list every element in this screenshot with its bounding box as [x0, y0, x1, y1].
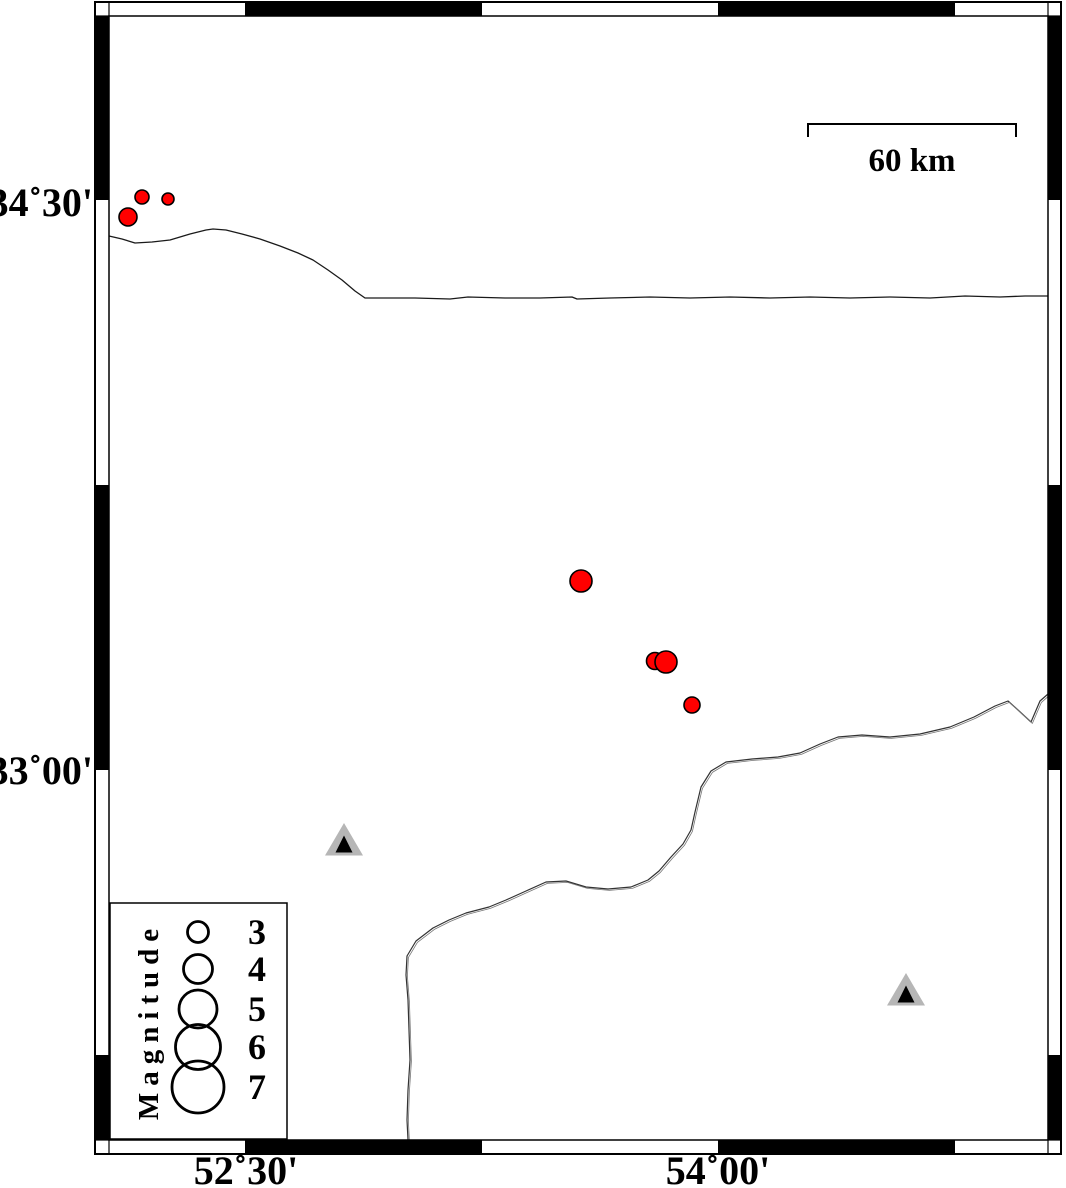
earthquake-marker	[570, 570, 592, 592]
scale-bar-label: 60 km	[868, 143, 955, 179]
legend-magnitude-label: 4	[248, 949, 266, 989]
frame-segment	[1048, 485, 1061, 770]
x-axis-tick-label: 54˚00'	[666, 1148, 770, 1188]
legend-magnitude-label: 3	[248, 912, 266, 952]
seismicity-map: Magnitude 34567 34˚30'33˚00'52˚30'54˚00'…	[0, 0, 1066, 1188]
frame-segment	[96, 1055, 109, 1140]
earthquake-marker	[162, 193, 174, 205]
earthquake-marker	[119, 208, 137, 226]
frame-segment	[96, 485, 109, 770]
legend-magnitude-label: 7	[248, 1067, 266, 1107]
earthquake-marker	[655, 651, 677, 673]
legend-magnitude-label: 6	[248, 1027, 266, 1067]
y-axis-tick-label: 33˚00'	[0, 748, 93, 793]
seismicity-map-figure: Magnitude 34567 34˚30'33˚00'52˚30'54˚00'…	[0, 0, 1066, 1188]
frame-segment	[718, 3, 955, 16]
frame-segment	[245, 3, 482, 16]
frame-segment	[1048, 1055, 1061, 1140]
legend-magnitude-label: 5	[248, 989, 266, 1029]
x-axis-tick-label: 52˚30'	[194, 1148, 298, 1188]
legend: Magnitude 34567	[110, 903, 287, 1139]
y-axis-tick-label: 34˚30'	[0, 180, 93, 225]
earthquake-marker	[684, 697, 700, 713]
legend-title: Magnitude	[133, 922, 165, 1120]
frame-segment	[96, 16, 109, 200]
frame-segment	[1048, 16, 1061, 200]
legend-labels: 34567	[248, 912, 266, 1107]
earthquake-marker	[135, 190, 149, 204]
